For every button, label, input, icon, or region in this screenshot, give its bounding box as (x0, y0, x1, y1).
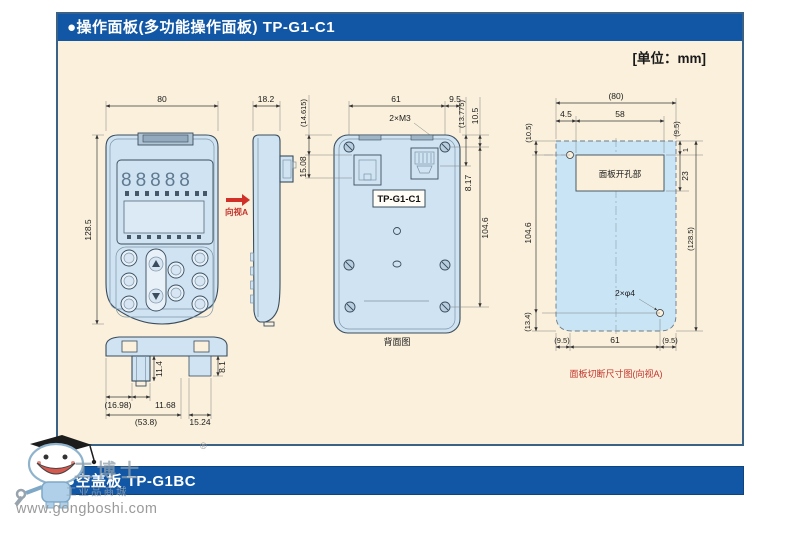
dim-cutout-right-height: (128.5) (686, 227, 695, 251)
dim-rear-right-3: 8.17 (463, 174, 473, 191)
dim-rear-right-1: (13.775) (457, 100, 466, 128)
dim-side-depth: 18.2 (258, 94, 275, 104)
view-a-label: 向视A (225, 207, 248, 217)
dim-bottom-conn-height: 11.4 (154, 361, 164, 377)
dim-bottom-left: (16.98) (105, 400, 132, 410)
hole-note-label: 2×φ4 (615, 288, 635, 298)
spec-sheet-box: ●操作面板(多功能操作面板) TP-G1-C1 [单位：mm] 80 128.5… (56, 12, 744, 446)
bottom-connector (132, 356, 150, 381)
dim-rear-right-height: 104.6 (480, 217, 490, 239)
watermark-brand-text: 工博士 (74, 456, 143, 483)
watermark-brand-subtext: 工业品商城 (66, 484, 129, 499)
screw-note-label: 2×M3 (389, 113, 411, 123)
cutout-view-caption: 面板切断尺寸图(向视A) (570, 368, 663, 379)
section-title: ●操作面板(多功能操作面板) TP-G1-C1 (67, 19, 335, 36)
side-key-bumps (251, 253, 254, 303)
lcd-screen (124, 201, 204, 233)
registered-mark: ® (200, 441, 207, 451)
side-view-drawing: 18.2 (251, 94, 297, 326)
rear-view-drawing: 61 9.5 2×M3 (298, 94, 490, 347)
dim-cutout-total-width: (80) (608, 91, 623, 101)
dim-rear-right-2: 10.5 (470, 107, 480, 124)
dim-bottom-right-height: 8.1 (217, 361, 227, 373)
model-label: TP-G1-C1 (377, 194, 421, 205)
section-header-blank-cover: ●空盖板 TP-G1BC (56, 466, 744, 495)
dim-cutout-bottom-center: 61 (610, 335, 620, 345)
rear-view-caption: 背面图 (383, 336, 410, 347)
dim-bottom-conn-width: 11.68 (155, 400, 176, 410)
dim-rear-left-upper: (14.615) (299, 99, 308, 127)
dim-cutout-bottom-left: (9.5) (554, 336, 570, 345)
keypad-buttons (121, 249, 208, 312)
dim-bottom-total: (53.8) (135, 417, 157, 427)
seven-segment-display: 88888 (121, 170, 194, 191)
dim-bottom-right: 15.24 (189, 417, 211, 427)
dim-cutout-left-height: 104.6 (523, 222, 533, 244)
bottom-view-drawing: 11.4 8.1 (16.98) 11.68 (53.8) 15.24 (105, 337, 227, 427)
dim-cutout-left-top: (10.5) (524, 123, 533, 143)
dim-front-height: 128.5 (83, 219, 93, 241)
dim-cutout-opening-height: 23 (680, 171, 690, 181)
dim-rear-width: 61 (391, 94, 401, 104)
dim-cutout-opening-width: 58 (615, 109, 625, 119)
cutout-opening-label: 面板开孔部 (599, 169, 642, 179)
panel-cutout-drawing: 面板开孔部 (80) 4.5 58 (10.5) 104.6 (13.4) (523, 91, 703, 379)
dim-rear-left-lower: 15.08 (298, 156, 308, 178)
dim-cutout-bottom-right: (9.5) (662, 336, 678, 345)
technical-drawing: 80 128.5 88888 (59, 43, 743, 445)
dim-cutout-hole-offset: 4.5 (560, 109, 572, 119)
front-view-drawing: 80 128.5 88888 (83, 94, 250, 324)
view-a-arrow (226, 194, 250, 206)
dim-cutout-edge: 1 (681, 148, 690, 152)
section-header-operation-panel: ●操作面板(多功能操作面板) TP-G1-C1 (58, 14, 742, 41)
watermark-site-url: www.gongboshi.com (16, 501, 158, 517)
dim-front-width: 80 (157, 94, 167, 104)
dim-cutout-left-bottom: (13.4) (523, 312, 532, 332)
dim-cutout-right-top: (9.5) (672, 121, 681, 137)
